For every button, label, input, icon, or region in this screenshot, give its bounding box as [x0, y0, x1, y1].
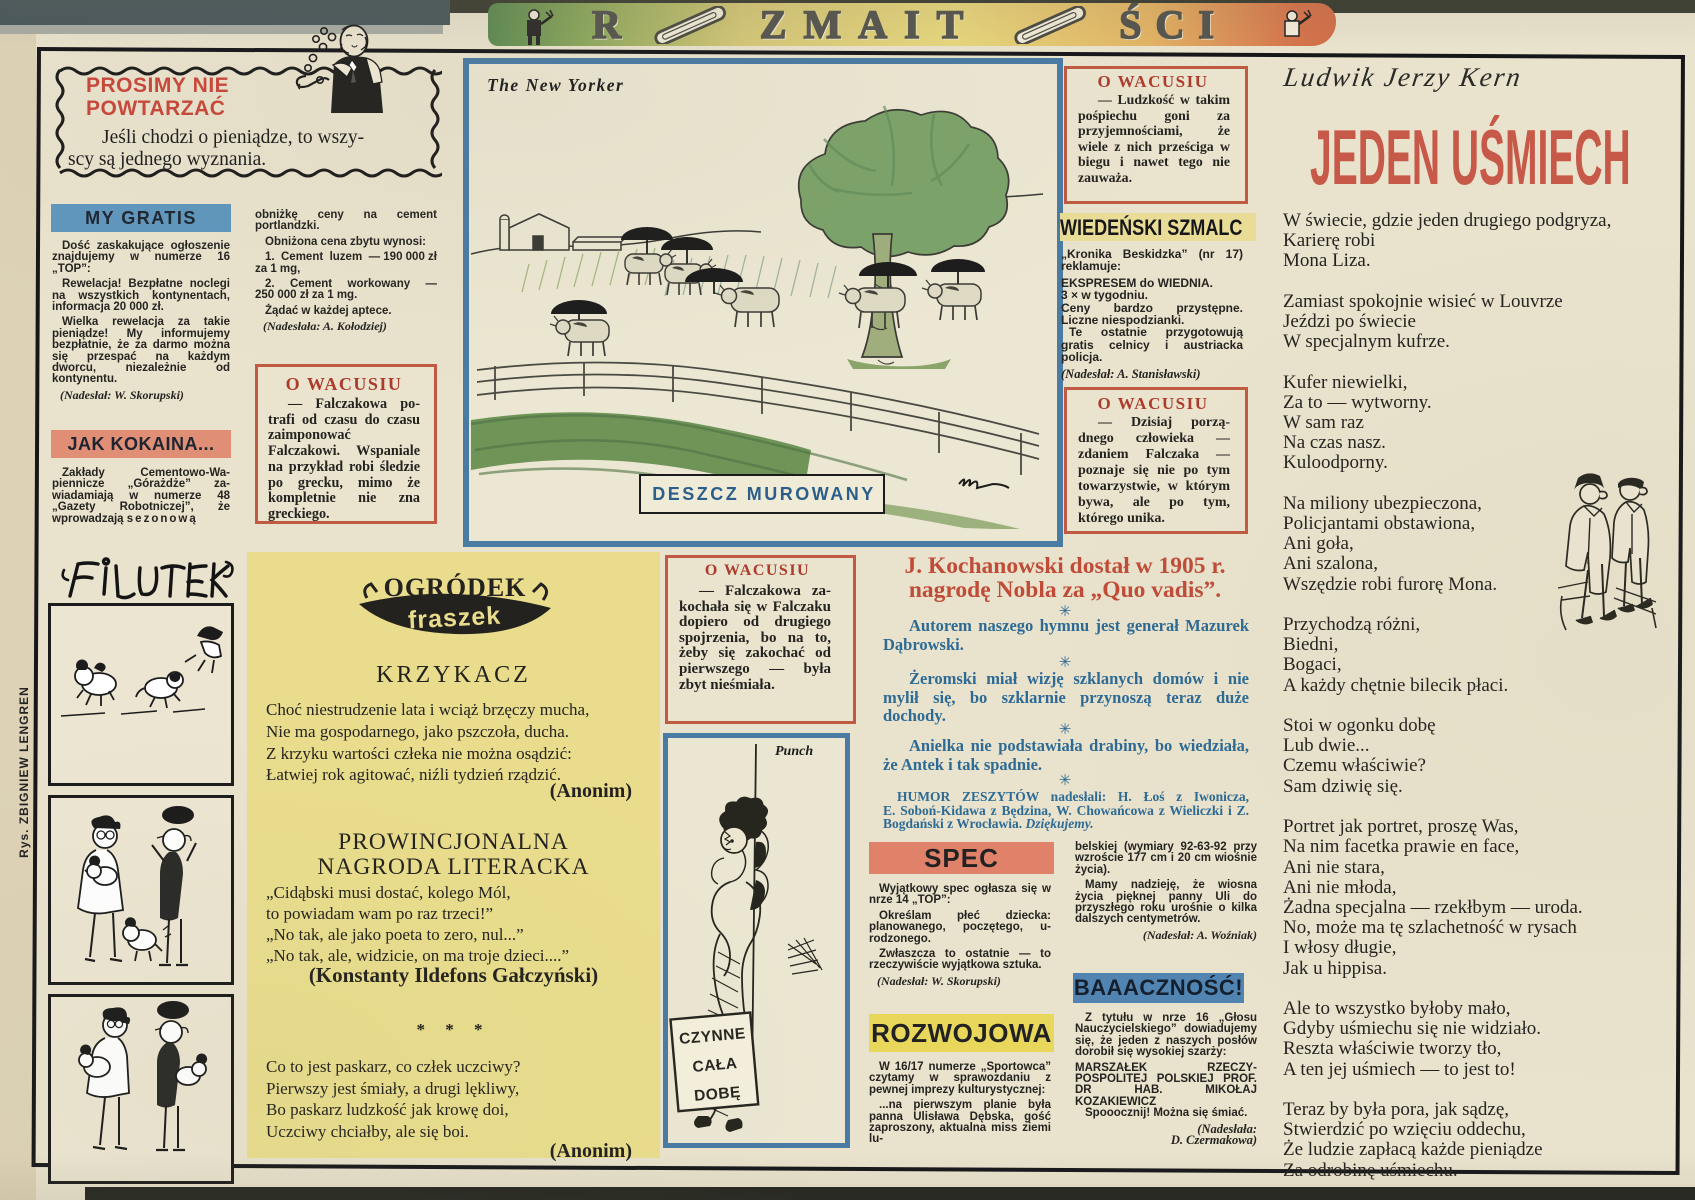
svg-text:fraszek: fraszek — [407, 602, 502, 635]
svg-text:OGRÓDEK: OGRÓDEK — [384, 573, 527, 602]
